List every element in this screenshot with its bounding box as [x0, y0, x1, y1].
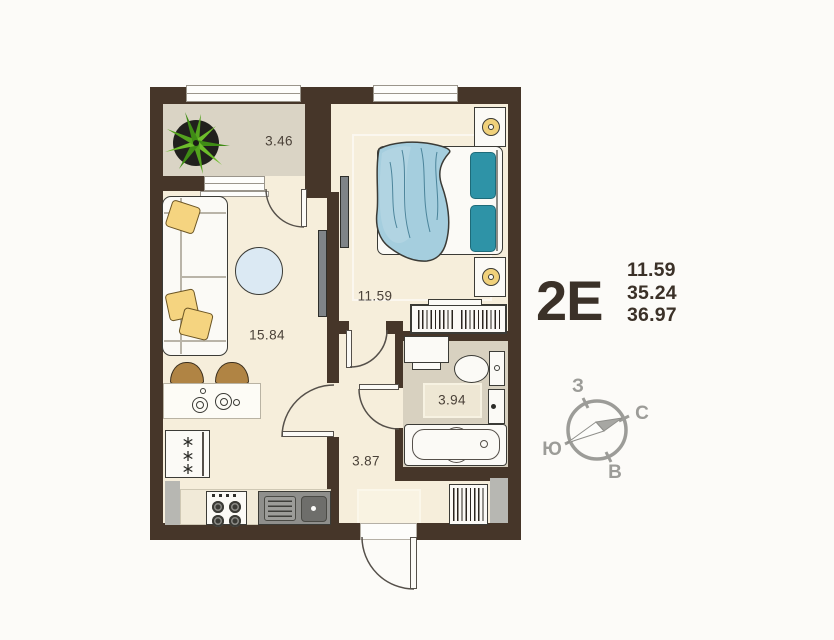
compass-west-label: З [572, 376, 584, 397]
glass [200, 388, 206, 394]
burner [212, 501, 224, 513]
tv-living [318, 230, 327, 317]
wall-living-bedroom [327, 192, 339, 383]
wall-right [508, 87, 521, 540]
vent-duct [165, 481, 180, 525]
toilet-button [494, 365, 500, 371]
burner [229, 515, 241, 527]
wall-balcony-bottom [163, 176, 206, 191]
tv-bedroom [340, 176, 349, 248]
compass-south-label: Ю [542, 439, 562, 460]
bed-pillow [470, 152, 496, 199]
heater-dot [491, 404, 496, 409]
bed-pillow [470, 205, 496, 252]
toilet-bowl [454, 355, 489, 383]
compass-needle-back [567, 422, 604, 443]
wall-bottom-left [150, 523, 360, 540]
living-area-value: 11.59 [627, 259, 677, 282]
burner [229, 501, 241, 513]
entrance-door-arc [362, 537, 414, 589]
entrance-door-leaf [410, 537, 417, 589]
compass-rose: З С Ю В [542, 376, 649, 483]
balcony-door-leaf [301, 189, 307, 227]
bedroom-area-label: 11.59 [358, 289, 393, 304]
drainboard-ridges [268, 500, 292, 517]
sofa-armrest-line [164, 340, 226, 342]
burner [212, 515, 224, 527]
wardrobe-hangers [461, 310, 500, 329]
compass-east-label: В [608, 462, 622, 483]
floor-plan-canvas: З С Ю В 3.46 11.59 15.84 3.94 3.87 2Е 11… [0, 0, 834, 640]
apartment-type-code: 2Е [536, 273, 603, 329]
wall-bottom-right [417, 523, 521, 540]
doormat [357, 489, 421, 525]
faucet-dot [311, 506, 316, 511]
dining-table [163, 383, 261, 419]
entrance-threshold [360, 523, 417, 540]
bathroom-area-label: 3.94 [438, 393, 466, 408]
window-balcony-inner [204, 176, 265, 191]
compass-needle-tip [596, 418, 622, 431]
hall-wardrobe-hangers [453, 488, 484, 521]
total-area-value: 36.97 [627, 304, 677, 327]
apartment-area-values: 11.59 35.24 36.97 [627, 259, 677, 327]
stove-controls [212, 494, 240, 497]
window-bedroom-top [373, 85, 458, 102]
bathroom-door-leaf [359, 384, 399, 390]
bathtub-drain [480, 440, 488, 448]
apartment-area-value: 35.24 [627, 282, 677, 305]
bedroom-door-leaf [346, 330, 352, 368]
wash-basin-front [412, 362, 441, 370]
living-door-leaf [282, 431, 334, 437]
plate-inner [220, 398, 228, 406]
wardrobe-hangers [418, 310, 454, 329]
hallway-area-label: 3.87 [352, 454, 380, 469]
vent-duct [490, 478, 508, 523]
coffee-table [235, 247, 283, 295]
lamp-center [488, 124, 494, 130]
compass-north-label: С [635, 403, 649, 424]
window-balcony-top [186, 85, 301, 102]
fridge-door-line [202, 432, 204, 476]
sofa-cushion-line [181, 276, 226, 278]
plate-inner [196, 401, 204, 409]
wall-bathroom-left-a [395, 334, 403, 388]
balcony-area-label: 3.46 [265, 134, 293, 149]
bed-head-line [496, 150, 498, 251]
living-area-label: 15.84 [249, 328, 285, 343]
lamp-center [488, 274, 494, 280]
wash-basin [404, 336, 449, 363]
wardrobe-slider [428, 299, 482, 306]
glass [233, 399, 240, 406]
wall-balcony-right [305, 87, 331, 198]
